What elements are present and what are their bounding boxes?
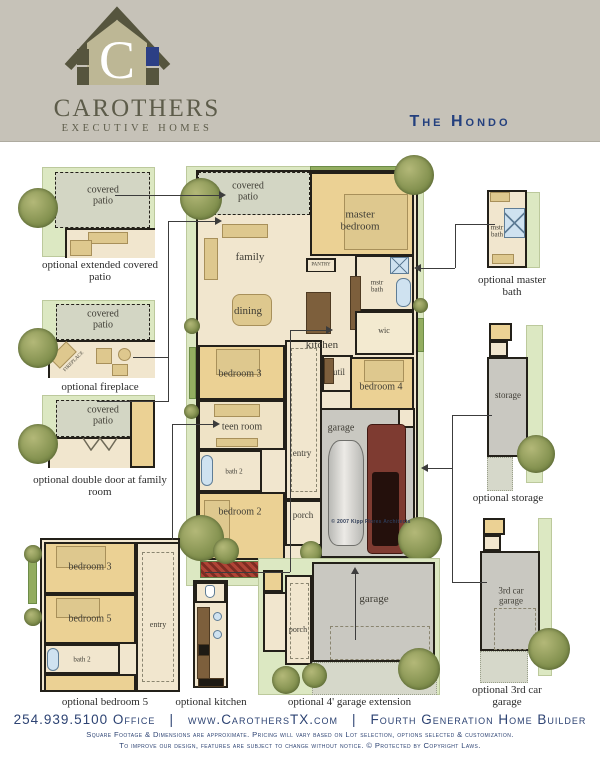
shrub [184,318,200,334]
flyer-page: C CAROTHERS EXECUTIVE HOMES The Hondo [0,0,600,777]
teen-console [216,438,258,447]
tree [398,648,440,690]
hedge-right [417,318,424,352]
tree [394,155,434,195]
shower-fixture [390,257,409,274]
label-opt5-mstr-bath: mstr bath [485,225,509,240]
family-sofa [222,224,268,238]
shrub [184,404,199,419]
double-door-icon [82,437,118,451]
svg-text:C: C [99,30,135,90]
tree [18,424,58,464]
label-opt3-patio: covered patio [79,405,127,426]
shrub [24,545,42,563]
label-wic: wic [369,327,399,335]
label-opt7-3rd-car: 3rd car garage [490,586,532,605]
caption-extended-patio: optional extended covered patio [33,259,167,284]
bush [517,435,555,473]
label-util: util [324,368,354,378]
label-dining: dining [218,306,278,318]
footer-separator: | [155,712,188,727]
label-garage: garage [316,424,366,435]
car-graphic [328,440,364,546]
footer-phone: 254.939.5100 Office [14,712,156,727]
carothers-logo-icon: C [60,5,175,93]
label-copyright: © 2007 Kipp Flores Architects [328,519,414,525]
page-title: The Hondo [370,113,550,131]
bush [528,628,570,670]
footer-disclaimer-line2: To improve our design, features are subj… [0,740,600,751]
bath2-tub [201,455,213,486]
shrub [413,298,428,313]
label-bedroom2: bedroom 2 [214,508,266,519]
header-band: C CAROTHERS EXECUTIVE HOMES The Hondo [0,0,600,142]
label-opt1-patio: covered patio [79,185,127,206]
entry-hall-dashes [291,348,317,492]
truck-bed [372,472,399,546]
label-pantry: pantry [308,262,334,267]
label-bedroom4: bedroom 4 [355,383,407,394]
tree [213,538,239,564]
caption-double-door: optional double door at family room [28,474,172,499]
label-covered-patio: covered patio [224,181,272,202]
brand-subtitle: EXECUTIVE HOMES [53,123,221,134]
footer-contact-line: 254.939.5100 Office|www.CarothersTX.com|… [0,712,600,727]
caption-third-car: optional 3rd car garage [470,684,544,709]
label-opt2-patio: covered patio [79,309,127,330]
tree [180,178,222,220]
label-opt4-bedroom3: bedroom 3 [64,563,116,574]
label-bath2: bath 2 [222,468,246,475]
master-tub [396,278,411,307]
footer-separator: | [338,712,371,727]
label-kitchen: kitchen [292,340,352,352]
tree [18,188,58,228]
footer-tagline: Fourth Generation Home Builder [370,712,586,727]
caption-kitchen: optional kitchen [166,696,256,708]
footer-disclaimer-line1: Square Footage & Dimensions are approxim… [0,729,600,740]
label-master-bedroom: master bedroom [329,209,391,232]
label-opt4-bath2: bath 2 [70,656,94,663]
label-opt4-bedroom5: bedroom 5 [64,615,116,626]
bed4 [364,360,404,382]
tree [302,663,327,688]
label-opt9-porch: porch [283,626,313,634]
label-family: family [220,252,280,264]
tree [272,666,300,694]
label-opt4-entry: entry [141,621,175,629]
teen-sofa [214,404,260,417]
family-sectional [204,238,218,280]
label-bedroom3: bedroom 3 [214,370,266,381]
hedge [28,560,37,604]
footer: 254.939.5100 Office|www.CarothersTX.com|… [0,712,600,752]
label-mstr-bath: mstr bath [365,280,389,295]
shrub [24,608,42,626]
label-opt6-storage: storage [486,391,530,401]
brand-name: CAROTHERS [53,95,221,123]
footer-url: www.CarothersTX.com [188,712,338,727]
caption-garage-extension: optional 4' garage extension [272,696,427,708]
caption-bedroom5: optional bedroom 5 [30,696,180,708]
tree [18,328,58,368]
caption-master-bath: optional master bath [468,274,556,299]
caption-fireplace: optional fireplace [33,381,167,393]
hedge-left [189,347,196,399]
label-porch: porch [286,511,320,521]
caption-storage: optional storage [462,492,554,504]
